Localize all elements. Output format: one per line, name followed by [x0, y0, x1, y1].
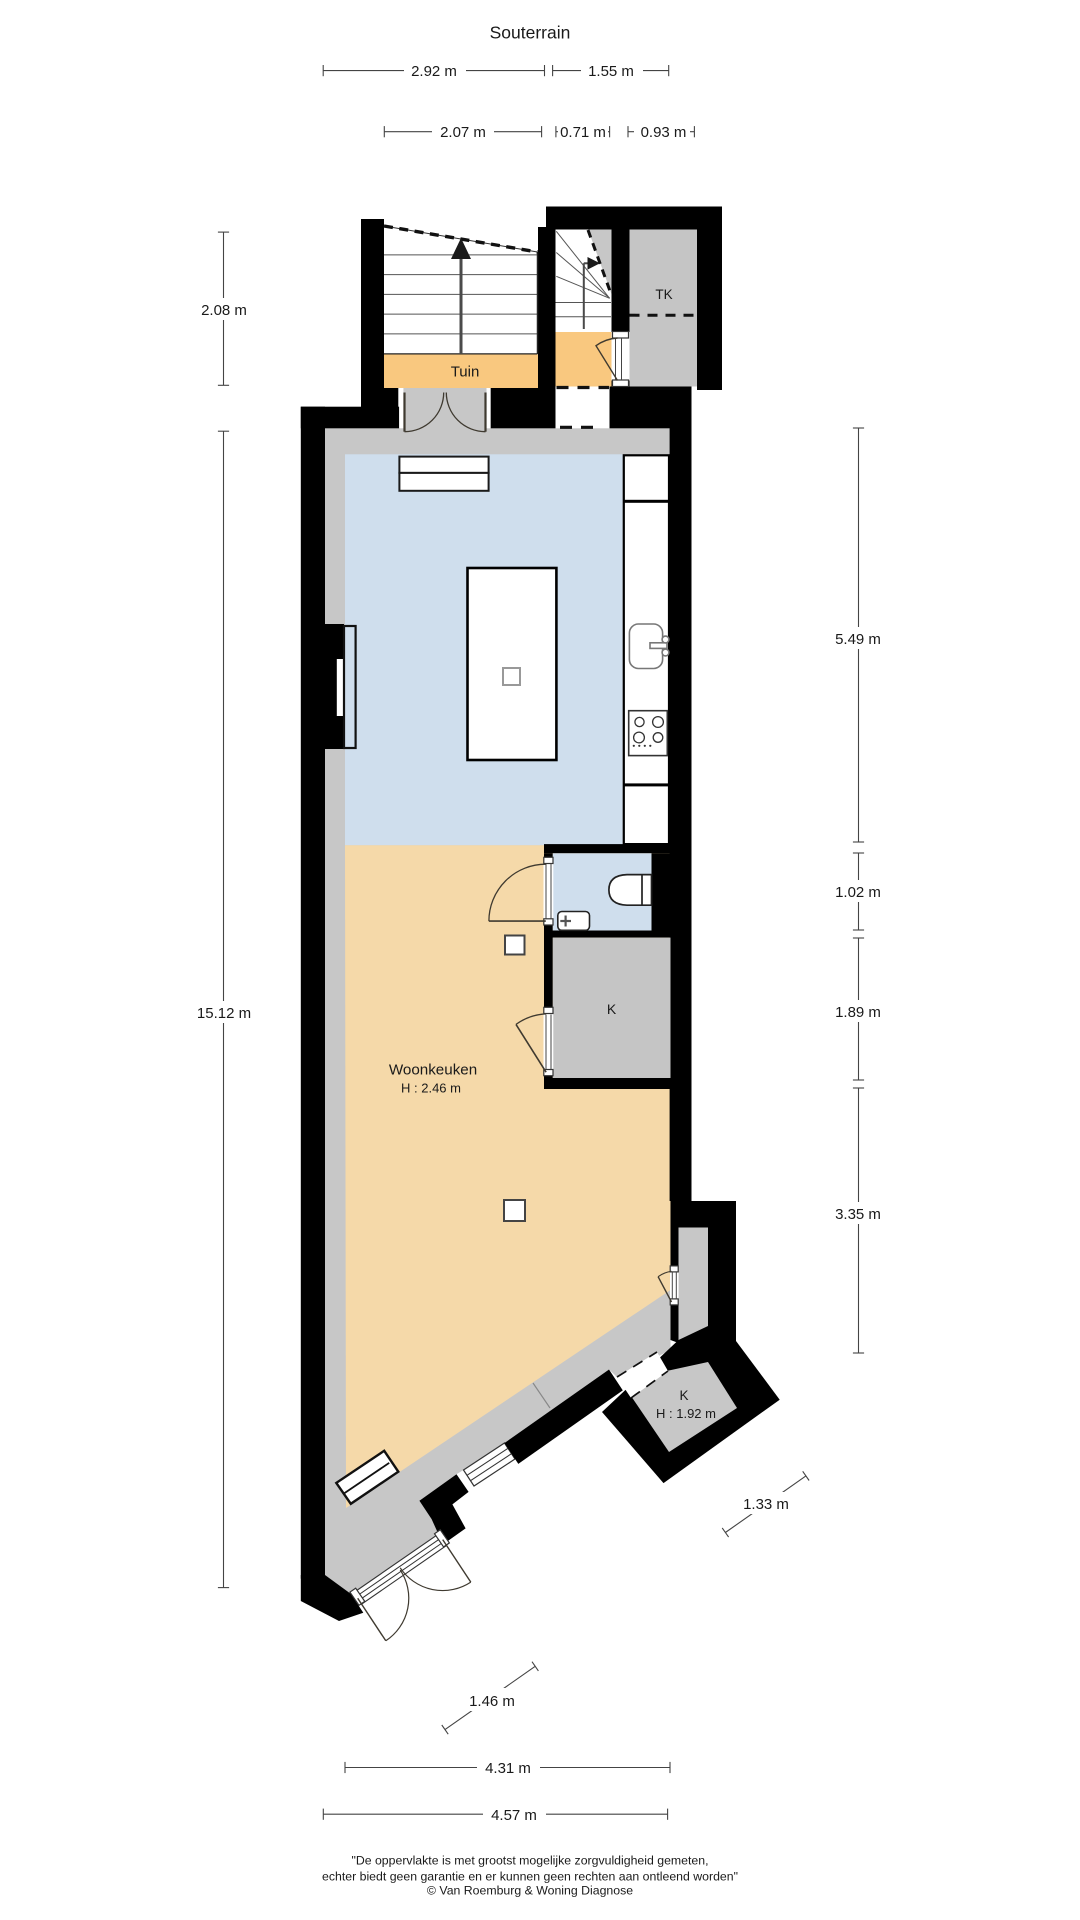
svg-text:2.07 m: 2.07 m — [440, 124, 486, 141]
svg-text:2.08 m: 2.08 m — [201, 302, 247, 319]
svg-text:15.12 m: 15.12 m — [197, 1005, 251, 1022]
svg-text:Woonkeuken: Woonkeuken — [389, 1062, 477, 1079]
svg-text:1.46 m: 1.46 m — [469, 1693, 515, 1710]
svg-text:TK: TK — [655, 287, 672, 302]
svg-text:© Van Roemburg & Woning Diagno: © Van Roemburg & Woning Diagnose — [427, 1884, 633, 1898]
svg-text:H : 2.46 m: H : 2.46 m — [401, 1081, 461, 1096]
svg-text:1.33 m: 1.33 m — [743, 1496, 789, 1513]
svg-text:1.55 m: 1.55 m — [588, 63, 634, 80]
svg-text:1.89 m: 1.89 m — [835, 1004, 881, 1021]
svg-text:"De oppervlakte is met grootst: "De oppervlakte is met grootst mogelijke… — [351, 1854, 708, 1868]
svg-text:H : 1.92 m: H : 1.92 m — [656, 1406, 716, 1421]
svg-text:Tuin: Tuin — [451, 364, 480, 381]
svg-text:2.92 m: 2.92 m — [411, 63, 457, 80]
svg-text:Souterrain: Souterrain — [490, 23, 571, 43]
svg-text:1.02 m: 1.02 m — [835, 884, 881, 901]
svg-text:5.49 m: 5.49 m — [835, 631, 881, 648]
svg-text:echter biedt geen garantie en: echter biedt geen garantie en er kunnen … — [322, 1870, 738, 1884]
svg-text:0.71 m: 0.71 m — [560, 124, 606, 141]
svg-text:4.57 m: 4.57 m — [491, 1807, 537, 1824]
svg-text:0.93 m: 0.93 m — [641, 124, 687, 141]
svg-text:3.35 m: 3.35 m — [835, 1206, 881, 1223]
svg-text:4.31 m: 4.31 m — [485, 1760, 531, 1777]
svg-text:K: K — [607, 1001, 617, 1017]
svg-text:K: K — [679, 1388, 688, 1403]
